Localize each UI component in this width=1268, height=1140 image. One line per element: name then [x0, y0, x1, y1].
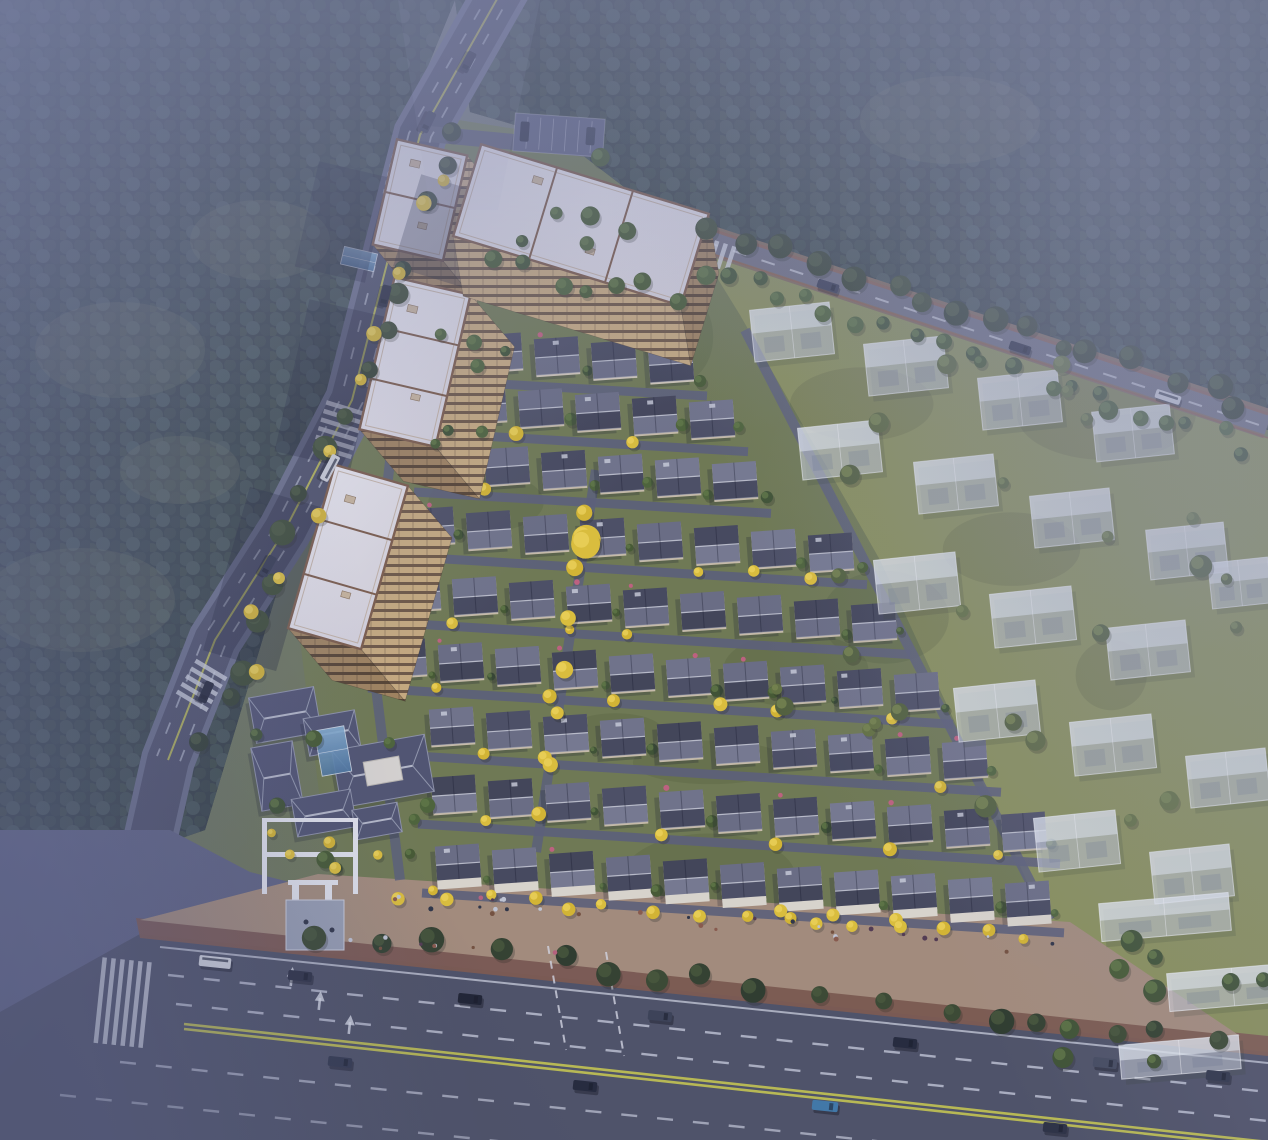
render-canvas — [0, 0, 1268, 1140]
atmosphere — [0, 0, 1268, 1140]
color-tint — [0, 0, 1268, 1140]
masterplan-aerial-render — [0, 0, 1268, 1140]
